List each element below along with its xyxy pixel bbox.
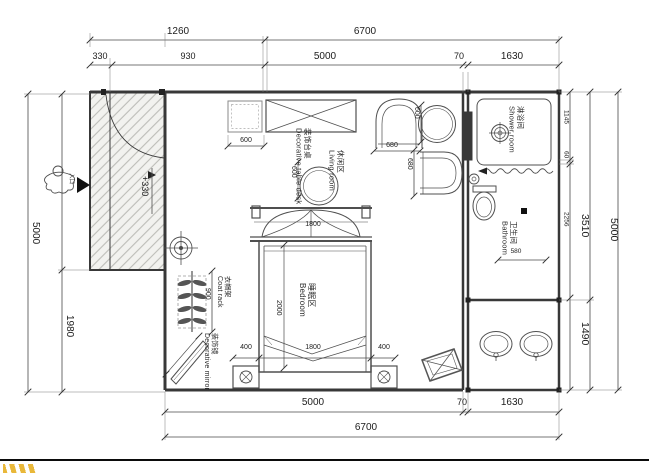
dim-bottom-6700: 6700 <box>355 423 377 433</box>
dim-bottom-1630: 1630 <box>501 398 523 408</box>
dim-right-2256: 2256 <box>562 212 569 226</box>
dim-nightstand-left-400: 400 <box>240 344 252 351</box>
dim-bed-2000: 2000 <box>274 300 282 316</box>
target-symbol <box>164 231 198 265</box>
dim-top-330: 330 <box>92 52 107 61</box>
dim-bottom-70: 70 <box>457 398 467 407</box>
dim-left-1980: 1980 <box>64 315 75 337</box>
toilet <box>473 186 496 220</box>
dim-top-6700: 6700 <box>354 27 376 37</box>
dim-top-70: 70 <box>454 52 464 61</box>
shower-curtain <box>478 168 553 175</box>
dim-bed-1800: 1800 <box>305 344 321 351</box>
side-table <box>419 106 456 143</box>
dim-left-5000: 5000 <box>30 222 41 244</box>
dim-nightstand-right-400: 400 <box>378 344 390 351</box>
page-bottom-rule <box>0 459 649 461</box>
label-decorative-mirror: 装饰镜 Decorative mirror <box>202 333 218 390</box>
floorplan-drawing <box>0 0 649 473</box>
dim-cabinet-600: 600 <box>240 137 252 144</box>
label-decorative-table: 装饰台桌 Decorative table desk <box>294 128 311 204</box>
label-shower-room: 淋浴间 Shower room <box>507 106 524 153</box>
dim-coat-rack-900: 900 <box>203 288 211 300</box>
dim-chair-680-depth: 680 <box>405 158 413 170</box>
cabinet-small <box>228 101 262 132</box>
nightstand-right <box>371 366 397 388</box>
dim-canopy-1800: 1800 <box>305 221 321 228</box>
floor-drain <box>521 208 527 214</box>
dim-right-3510: 3510 <box>578 214 590 237</box>
shower-door-panel <box>464 112 472 160</box>
dim-right-1490: 1490 <box>578 322 590 345</box>
dim-top-5000: 5000 <box>314 52 336 62</box>
label-coat-rack: 衣帽架 Coat rack <box>215 276 231 308</box>
label-living-room: 休闲区 Living room <box>327 150 344 191</box>
dim-table-600: 600 <box>412 107 420 119</box>
dim-top-1630: 1630 <box>501 52 523 62</box>
dim-bottom-5000: 5000 <box>302 398 324 408</box>
toilet-paper-holder <box>469 174 479 184</box>
vanity-sinks <box>480 332 552 362</box>
dim-right-1145: 1145 <box>562 110 569 124</box>
entrance-arrow-icon <box>77 177 90 193</box>
crossed-box <box>422 349 462 381</box>
floorplan-page: 1260 6700 330 930 5000 70 1630 5000 70 1… <box>0 0 649 473</box>
label-bathroom: 卫生间 Bathroom <box>500 221 517 255</box>
floor-level-330: +330 <box>140 176 150 196</box>
lounge-chair-right <box>420 152 462 194</box>
dim-top-1260: 1260 <box>167 27 189 37</box>
label-bedroom: 睡眠区 Bedroom <box>297 283 315 317</box>
dim-top-930: 930 <box>180 52 195 61</box>
dim-right-5000: 5000 <box>607 218 619 241</box>
dim-right-60: 60 <box>562 151 569 158</box>
coat-rack <box>177 271 207 332</box>
nightstand-left <box>233 366 259 388</box>
dim-chair-680-width: 680 <box>386 142 398 149</box>
corner-watermark <box>3 464 37 473</box>
entrance-label: 入口 <box>68 173 74 184</box>
